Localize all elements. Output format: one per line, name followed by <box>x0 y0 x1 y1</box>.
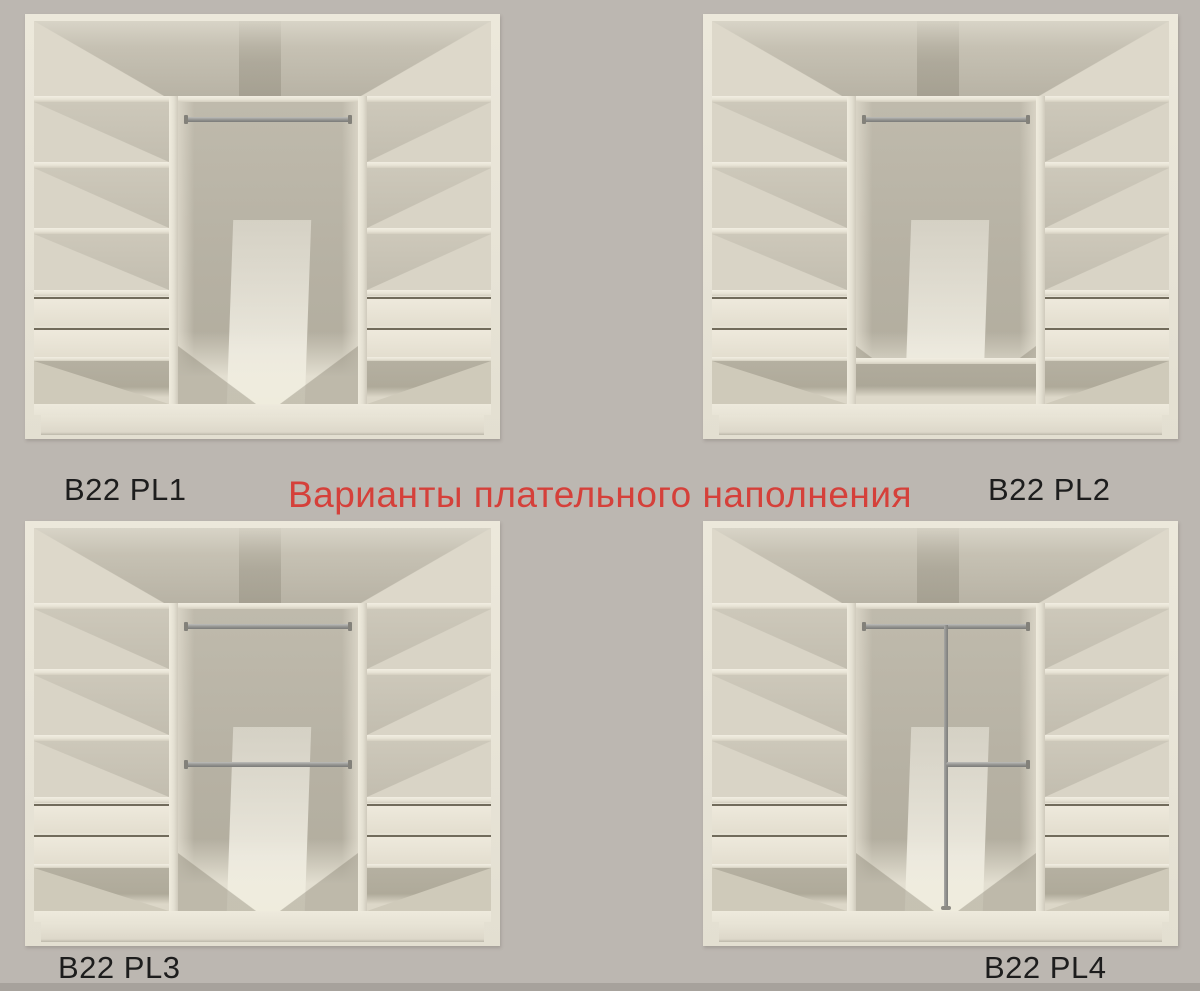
drawer-top-shelf <box>367 290 491 296</box>
drawer-top-shelf <box>1045 290 1169 296</box>
left-shelf-column <box>34 102 169 404</box>
shelf-compartment <box>1045 609 1169 669</box>
drawer <box>712 835 847 864</box>
drawer-top-shelf <box>1045 797 1169 803</box>
drawer-stack <box>1045 290 1169 361</box>
wardrobe-render-1 <box>25 14 500 439</box>
shelf-compartment <box>367 234 491 290</box>
shelf-compartment <box>34 741 169 797</box>
hanging-section <box>178 102 358 404</box>
cabinet-floor <box>712 911 1169 922</box>
shelf-compartment <box>367 741 491 797</box>
hanging-section <box>856 102 1036 404</box>
shelf-compartment <box>712 168 847 228</box>
cabinet-floor <box>712 404 1169 415</box>
drawer-stack <box>34 797 169 868</box>
plinth <box>41 415 484 435</box>
drawer <box>34 835 169 864</box>
shelf-compartment <box>34 168 169 228</box>
wardrobe-render-4 <box>703 521 1178 946</box>
drawer-stack <box>712 290 847 361</box>
floor-shadow-left <box>856 853 934 911</box>
shelf-compartment <box>367 168 491 228</box>
back-shadow-stripe <box>917 528 959 603</box>
left-shelf-column <box>712 102 847 404</box>
top-shelf-compartment <box>34 21 491 96</box>
drawer-top-shelf <box>712 797 847 803</box>
shelf-compartment <box>1045 102 1169 162</box>
shelf-compartment <box>712 609 847 669</box>
drawer <box>34 804 169 833</box>
top-shelf-compartment <box>34 528 491 603</box>
hanging-rod-top <box>185 117 351 122</box>
plinth <box>719 922 1162 942</box>
hanging-rod-half-width <box>946 762 1029 767</box>
vertical-support-pole <box>944 625 948 910</box>
hanging-rod-lower <box>185 762 351 767</box>
shelf-compartment <box>712 675 847 735</box>
drawer-top-shelf <box>712 290 847 296</box>
open-compartment <box>1045 868 1169 911</box>
floor-shadow-right <box>280 346 358 404</box>
shelf-compartment <box>367 102 491 162</box>
drawer <box>34 328 169 357</box>
drawer-stack <box>367 797 491 868</box>
shelf-compartment <box>712 741 847 797</box>
wardrobe-label: B22 PL4 <box>984 950 1106 986</box>
drawer <box>712 804 847 833</box>
shelf-compartment <box>367 675 491 735</box>
page-title: Варианты плательного наполнения <box>288 474 912 516</box>
shelf-compartment <box>1045 168 1169 228</box>
divider-panel <box>847 96 856 404</box>
drawer-stack <box>1045 797 1169 868</box>
drawer-top-shelf <box>367 797 491 803</box>
drawer-stack <box>712 797 847 868</box>
divider-panel <box>847 603 856 911</box>
divider-panel <box>358 96 367 404</box>
drawer-stack <box>367 290 491 361</box>
catalog-collage: B22 PL1 B22 PL2 B22 PL3 B22 PL4 Варианты… <box>0 0 1200 991</box>
drawer-stack <box>34 290 169 361</box>
drawer <box>34 297 169 326</box>
shelf-compartment <box>34 102 169 162</box>
image-bottom-edge <box>0 983 1200 991</box>
divider-panel <box>1036 96 1045 404</box>
open-compartment <box>1045 361 1169 404</box>
shelf-compartment <box>1045 234 1169 290</box>
shelf-compartment <box>712 102 847 162</box>
hanging-section <box>856 609 1036 911</box>
floor-shadow-right <box>280 853 358 911</box>
plinth <box>41 922 484 942</box>
right-shelf-column <box>367 102 491 404</box>
drawer <box>367 804 491 833</box>
floor-shadow-left <box>178 853 256 911</box>
open-compartment <box>367 361 491 404</box>
drawer <box>367 297 491 326</box>
shelf-compartment <box>34 234 169 290</box>
top-shelf-compartment <box>712 528 1169 603</box>
drawer <box>1045 835 1169 864</box>
left-shelf-column <box>34 609 169 911</box>
divider-panel <box>358 603 367 911</box>
open-compartment <box>367 868 491 911</box>
cabinet-floor <box>34 911 491 922</box>
drawer <box>1045 804 1169 833</box>
shelf-compartment <box>1045 741 1169 797</box>
open-compartment <box>34 868 169 911</box>
shelf-compartment <box>1045 675 1169 735</box>
back-shadow-stripe <box>917 21 959 96</box>
divider-panel <box>169 96 178 404</box>
floor-shadow-right <box>958 853 1036 911</box>
open-compartment <box>712 868 847 911</box>
shelf-compartment <box>34 609 169 669</box>
left-shelf-column <box>712 609 847 911</box>
shelf-compartment <box>712 234 847 290</box>
wardrobe-label: B22 PL3 <box>58 950 180 986</box>
open-compartment <box>34 361 169 404</box>
top-shelf-compartment <box>712 21 1169 96</box>
wardrobe-label: B22 PL1 <box>64 472 186 508</box>
drawer <box>712 297 847 326</box>
right-shelf-column <box>1045 102 1169 404</box>
shelf-compartment <box>34 675 169 735</box>
drawer <box>367 328 491 357</box>
floor-shadow-left <box>178 346 256 404</box>
shelf-compartment <box>367 609 491 669</box>
right-shelf-column <box>1045 609 1169 911</box>
wardrobe-render-2 <box>703 14 1178 439</box>
cabinet-floor <box>34 404 491 415</box>
back-shadow-stripe <box>239 21 281 96</box>
drawer <box>1045 328 1169 357</box>
wardrobe-render-3 <box>25 521 500 946</box>
back-shadow-stripe <box>239 528 281 603</box>
drawer <box>1045 297 1169 326</box>
divider-panel <box>169 603 178 911</box>
open-compartment <box>712 361 847 404</box>
hanging-rod-top <box>863 117 1029 122</box>
right-shelf-column <box>367 609 491 911</box>
hanging-section <box>178 609 358 911</box>
hanging-rod-top <box>185 624 351 629</box>
drawer-top-shelf <box>34 290 169 296</box>
divider-panel <box>1036 603 1045 911</box>
wardrobe-label: B22 PL2 <box>988 472 1110 508</box>
plinth <box>719 415 1162 435</box>
bottom-shelf-compartment <box>856 364 1036 404</box>
drawer-top-shelf <box>34 797 169 803</box>
drawer <box>367 835 491 864</box>
drawer <box>712 328 847 357</box>
